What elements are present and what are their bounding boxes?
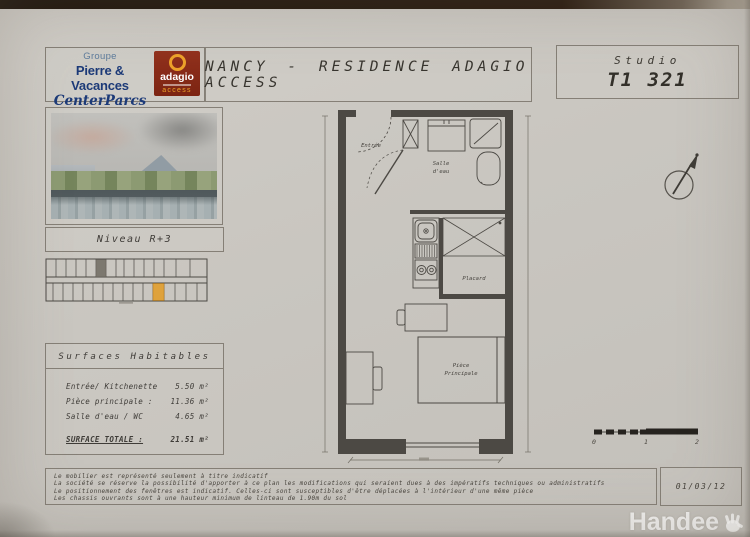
exterior-walls xyxy=(338,110,513,454)
row-label: Entrée/ Kitchenette xyxy=(66,382,158,391)
pierre-vacances-logo: Groupe Pierre & Vacances CenterParcs xyxy=(46,48,154,109)
scale-label-0: 0 xyxy=(592,438,596,446)
photo-water-shade xyxy=(51,197,217,205)
keyplan-strip xyxy=(45,256,208,304)
brand-name: Pierre & Vacances xyxy=(46,63,154,93)
scale-solid-segment xyxy=(646,429,698,435)
sheet-title: NANCY - RESIDENCE ADAGIO ACCESS xyxy=(205,59,531,91)
surfaces-table: Surfaces Habitables Entrée/ Kitchenette … xyxy=(45,343,224,455)
shelf-area xyxy=(443,218,505,256)
placard-label: Placard xyxy=(462,276,486,282)
shower-tray xyxy=(428,120,465,151)
window xyxy=(406,443,479,447)
unit-block: Studio T1 321 xyxy=(556,45,739,99)
placard-bottom-wall xyxy=(439,294,505,299)
salle-deau-label-2: d'eau xyxy=(433,169,450,175)
surfaces-row-entree: Entrée/ Kitchenette 5.50 m² xyxy=(46,382,223,391)
chair-upper xyxy=(397,310,405,325)
note-line-2: La société se réserve la possibilité d'a… xyxy=(54,480,648,487)
duct xyxy=(403,120,418,148)
photo-cloud-dark xyxy=(139,113,217,151)
photo-trees xyxy=(51,171,217,191)
note-line-1: Le mobilier est représenté seulement à t… xyxy=(54,473,648,480)
row-value: 11.36 m² xyxy=(170,397,209,406)
adagio-name: adagio xyxy=(160,71,194,83)
toilet xyxy=(477,152,500,185)
piece-principale-label-1: Pièce xyxy=(453,362,470,369)
salle-deau-label-1: Salle xyxy=(433,161,450,167)
level-label: Niveau R+3 xyxy=(97,234,172,245)
level-block: Niveau R+3 xyxy=(45,227,224,252)
adagio-divider xyxy=(163,84,191,86)
placard-wall xyxy=(439,218,443,299)
entree-label: Entrée xyxy=(361,142,382,149)
photo-quay xyxy=(51,190,217,197)
row-label: Salle d'eau / WC xyxy=(66,412,143,421)
note-line-3: Le positionnement des fenêtres est indic… xyxy=(54,488,648,495)
total-label: SURFACE TOTALE : xyxy=(66,435,143,444)
adagio-logo: adagio access xyxy=(154,51,200,96)
table-upper xyxy=(397,304,447,331)
title-block: NANCY - RESIDENCE ADAGIO ACCESS xyxy=(204,47,532,102)
site-photo xyxy=(51,113,217,219)
row-label: Pièce principale : xyxy=(66,397,153,406)
surfaces-row-sde: Salle d'eau / WC 4.65 m² xyxy=(46,412,223,421)
unit-number: T1 321 xyxy=(607,69,688,91)
date-block: 01/03/12 xyxy=(660,467,742,506)
photo-edge-top xyxy=(0,0,750,9)
legal-notes: Le mobilier est représenté seulement à t… xyxy=(45,468,657,505)
keyplan-highlight-unit xyxy=(153,284,164,301)
angled-door-arc xyxy=(367,150,403,188)
total-value: 21.51 m² xyxy=(170,435,209,444)
site-photo-frame xyxy=(45,107,223,225)
floor-plan: Entrée Salle d'eau Placard Pièce Princip… xyxy=(315,104,550,466)
adagio-access-label: access xyxy=(162,87,192,94)
piece-principale-label-2: Principale xyxy=(444,371,478,377)
photo-cloud xyxy=(51,119,137,155)
logo-block: Groupe Pierre & Vacances CenterParcs ada… xyxy=(45,47,206,102)
north-arrow-icon xyxy=(653,148,713,208)
surfaces-total-row: SURFACE TOTALE : 21.51 m² xyxy=(46,435,223,444)
angled-door xyxy=(375,150,403,194)
plan-sheet-photo: Groupe Pierre & Vacances CenterParcs ada… xyxy=(0,0,750,537)
keyplan-dark-unit xyxy=(96,260,106,278)
scale-bar: 0 1 2 xyxy=(592,426,704,448)
adagio-ring-icon xyxy=(169,54,186,71)
desk-left xyxy=(346,352,382,404)
washbasin xyxy=(470,119,501,148)
surfaces-row-piece: Pièce principale : 11.36 m² xyxy=(46,397,223,406)
row-value: 4.65 m² xyxy=(175,412,209,421)
scale-label-2: 2 xyxy=(695,438,699,446)
note-line-4: Les chassis ouvrants sont à une hauteur … xyxy=(54,495,648,502)
groupe-label: Groupe xyxy=(46,51,154,62)
chair-left xyxy=(373,367,382,390)
photo-corner-shadow xyxy=(0,501,56,537)
scale-label-1: 1 xyxy=(644,438,648,446)
keyplan-scale-mark xyxy=(119,302,133,303)
bed xyxy=(418,337,505,403)
row-value: 5.50 m² xyxy=(175,382,209,391)
photo-edge-right xyxy=(744,0,750,537)
bathroom-wall xyxy=(410,210,505,214)
photo-edge-bottom xyxy=(0,530,750,537)
surfaces-title: Surfaces Habitables xyxy=(46,352,223,369)
surfaces-rows: Entrée/ Kitchenette 5.50 m² Pièce princi… xyxy=(46,382,223,421)
date-value: 01/03/12 xyxy=(676,482,727,491)
dimension-width-label xyxy=(419,458,429,461)
kitchen-unit xyxy=(413,218,439,288)
unit-type: Studio xyxy=(614,54,681,67)
drainer xyxy=(415,244,437,258)
